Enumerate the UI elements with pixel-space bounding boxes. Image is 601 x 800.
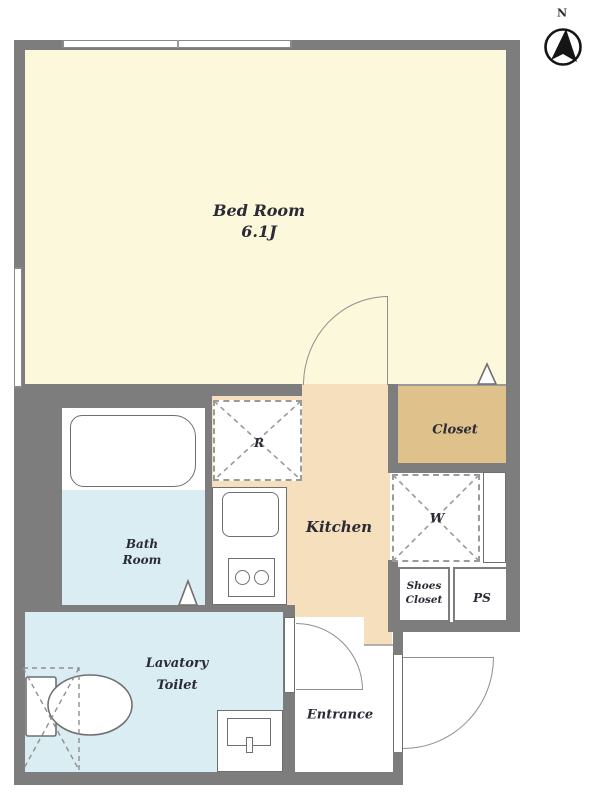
washbasin-tap <box>246 737 253 753</box>
bedroom-size: 6.1J <box>213 221 305 242</box>
entrance-door-swing <box>403 657 494 749</box>
shoes-closet-label: Shoes Closet <box>406 579 443 607</box>
bathroom-label: Bath Room <box>123 536 162 568</box>
wall-right <box>506 40 520 632</box>
wall-left <box>14 40 25 785</box>
refrigerator-label: R <box>254 436 264 450</box>
window-top-mullion <box>177 40 179 48</box>
compass-n-label: N <box>557 7 567 20</box>
wall-under-ps <box>393 622 520 632</box>
closet-label: Closet <box>432 423 478 438</box>
kitchen-label: Kitchen <box>306 518 372 536</box>
floor-plan: Bed Room 6.1J Kitchen Closet Bath Room L… <box>0 0 601 800</box>
washer-label: W <box>430 512 445 527</box>
stove-burner-left <box>235 570 250 585</box>
ps-label: PS <box>473 591 491 605</box>
wall-bottom <box>14 772 403 785</box>
kitchen-sink <box>222 492 279 537</box>
entrance-door-opening <box>393 655 403 752</box>
bedroom-label: Bed Room 6.1J <box>213 200 305 242</box>
entrance-label: Entrance <box>307 708 373 723</box>
bedroom-name: Bed Room <box>213 200 305 221</box>
stove-burner-right <box>254 570 269 585</box>
window-left <box>14 267 22 388</box>
lavatory-label: Lavatory Toilet <box>146 653 209 697</box>
north-compass-icon <box>546 29 581 65</box>
bathtub <box>70 415 196 487</box>
hall-door-panel <box>284 617 295 693</box>
wall-door-post <box>388 384 398 473</box>
wall-bedroom-south <box>14 384 302 396</box>
wall-lavatory-north <box>14 605 295 612</box>
counter-beside-washer <box>483 472 506 563</box>
